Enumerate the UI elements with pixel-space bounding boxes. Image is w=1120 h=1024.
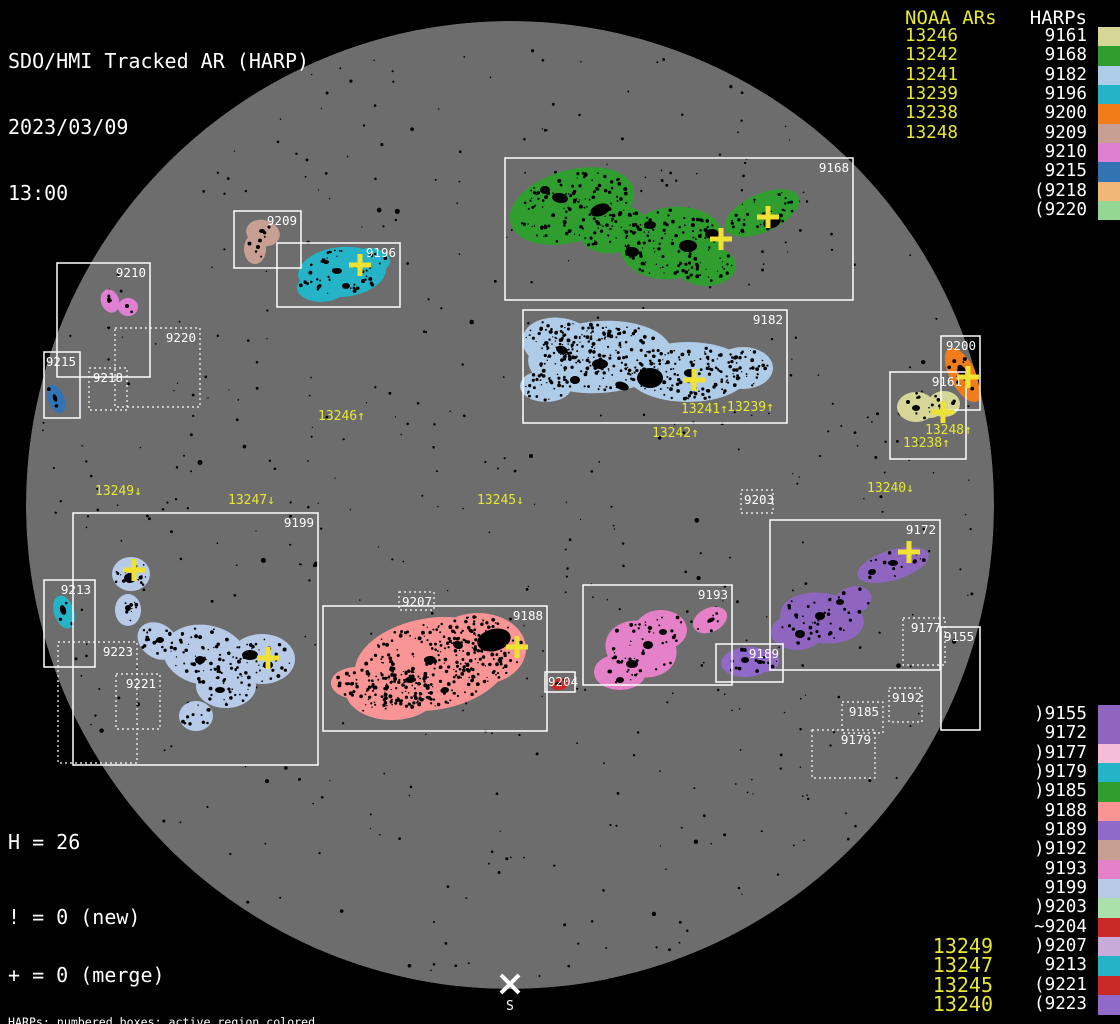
title-block: SDO/HMI Tracked AR (HARP) 2023/03/09 13:… xyxy=(8,6,309,248)
harp-color-swatch xyxy=(1098,143,1120,162)
harp-color-swatch xyxy=(1098,162,1120,181)
south-label: S xyxy=(506,999,514,1014)
harp-box-label-9223: 9223 xyxy=(103,644,133,659)
harp-list-row: 13240(9223 xyxy=(930,995,1120,1014)
harp-number: )9155 xyxy=(993,705,1087,724)
harp-number: 9209 xyxy=(968,124,1087,143)
harp-number: 9193 xyxy=(993,860,1087,879)
noaa-label-13240: 13240↓ xyxy=(867,481,914,496)
noaa-ar-number xyxy=(930,782,993,801)
noaa-ar-number: 13240 xyxy=(930,995,993,1014)
harp-list-row: 132419182 xyxy=(905,66,1120,85)
noaa-ar-number xyxy=(930,840,993,859)
harp-color-swatch xyxy=(1098,840,1120,859)
harp-number: 9210 xyxy=(968,143,1087,162)
harp-color-swatch xyxy=(1098,918,1120,937)
harp-list-row: 132429168 xyxy=(905,46,1120,65)
harp-list-row: (9220 xyxy=(905,201,1120,220)
harp-list-row: 9215 xyxy=(905,162,1120,181)
harp-color-swatch xyxy=(1098,937,1120,956)
harp-list-row: 132389200 xyxy=(905,104,1120,123)
harp-box-label-9188: 9188 xyxy=(513,608,543,623)
noaa-label-13239: 13239↑ xyxy=(727,400,774,415)
harp-count-label: H = 26 xyxy=(8,830,80,854)
noaa-label-13238: 13238↑ xyxy=(903,436,950,451)
harp-box-label-9182: 9182 xyxy=(753,312,783,327)
harp-number: 9168 xyxy=(968,46,1087,65)
harp-list-row: 132399196 xyxy=(905,85,1120,104)
harp-number: 9196 xyxy=(968,85,1087,104)
harp-number: (9223 xyxy=(993,995,1087,1014)
harp-color-swatch xyxy=(1098,744,1120,763)
harp-box-label-9213: 9213 xyxy=(61,582,91,597)
page-title: SDO/HMI Tracked AR (HARP) xyxy=(8,50,309,72)
harp-number: (9221 xyxy=(993,976,1087,995)
harp-number: (9220 xyxy=(968,201,1087,220)
footnote: HARPs: numbered boxes; active region col… xyxy=(8,991,413,1024)
harp-box-label-9185: 9185 xyxy=(849,704,879,719)
noaa-ar-number xyxy=(905,162,968,181)
harp-box-label-9221: 9221 xyxy=(126,676,156,691)
noaa-ar-number: 13242 xyxy=(905,46,968,65)
legend-line-merge: + = 0 (merge) xyxy=(8,966,237,985)
harp-number: 9215 xyxy=(968,162,1087,181)
harp-color-swatch xyxy=(1098,995,1120,1014)
harp-list-row: )9192 xyxy=(930,840,1120,859)
harp-number: )9192 xyxy=(993,840,1087,859)
harp-list-row: )9155 xyxy=(930,705,1120,724)
noaa-ar-number xyxy=(930,705,993,724)
harp-list-row: 9193 xyxy=(930,860,1120,879)
harp-color-swatch xyxy=(1098,66,1120,85)
noaa-label-13242: 13242↑ xyxy=(652,426,699,441)
noaa-ar-number xyxy=(930,744,993,763)
noaa-ar-number xyxy=(930,860,993,879)
harp-color-swatch xyxy=(1098,956,1120,975)
harp-box-label-9179: 9179 xyxy=(841,732,871,747)
noaa-ar-number xyxy=(930,724,993,743)
harp-box-label-9218: 9218 xyxy=(93,370,123,385)
harp-box-label-9192: 9192 xyxy=(892,690,922,705)
harp-number: 9182 xyxy=(968,66,1087,85)
harp-box-label-9220: 9220 xyxy=(166,330,196,345)
harp-color-swatch xyxy=(1098,85,1120,104)
noaa-ar-number: 13248 xyxy=(905,124,968,143)
harp-color-swatch xyxy=(1098,976,1120,995)
harp-list-row: 9189 xyxy=(930,821,1120,840)
time-label: 13:00 xyxy=(8,182,309,204)
harp-box-label-9203: 9203 xyxy=(744,492,774,507)
harp-list-row: )9177 xyxy=(930,744,1120,763)
harp-number: 9188 xyxy=(993,802,1087,821)
noaa-label-13247: 13247↓ xyxy=(228,493,275,508)
noaa-label-13245: 13245↓ xyxy=(477,493,524,508)
noaa-label-13246: 13246↑ xyxy=(318,409,365,424)
harp-color-swatch xyxy=(1098,879,1120,898)
harp-color-swatch xyxy=(1098,860,1120,879)
noaa-ar-number: 13241 xyxy=(905,66,968,85)
harp-box-label-9168: 9168 xyxy=(819,160,849,175)
noaa-ar-number xyxy=(930,879,993,898)
noaa-ar-number xyxy=(930,763,993,782)
noaa-label-13249: 13249↓ xyxy=(95,484,142,499)
noaa-ar-number: 13239 xyxy=(905,85,968,104)
date-label: 2023/03/09 xyxy=(8,116,309,138)
noaa-ar-number xyxy=(930,821,993,840)
harp-list-row: )9203 xyxy=(930,898,1120,917)
harp-box-label-9204: 9204 xyxy=(548,674,578,689)
harp-list-row: )9185 xyxy=(930,782,1120,801)
noaa-ar-number xyxy=(905,182,968,201)
harp-color-swatch xyxy=(1098,46,1120,65)
harp-color-swatch xyxy=(1098,705,1120,724)
harp-box-label-9189: 9189 xyxy=(749,646,779,661)
harp-number: 9161 xyxy=(968,27,1087,46)
harp-number: )9203 xyxy=(993,898,1087,917)
noaa-ar-number: 13238 xyxy=(905,104,968,123)
harp-box-label-9200: 9200 xyxy=(946,338,976,353)
harp-color-swatch xyxy=(1098,763,1120,782)
harp-number: 9213 xyxy=(993,956,1087,975)
harp-number: 9189 xyxy=(993,821,1087,840)
footnote-harps: HARPs: numbered boxes; active region col… xyxy=(8,1016,413,1024)
harp-box-label-9210: 9210 xyxy=(116,265,146,280)
noaa-ar-number xyxy=(905,201,968,220)
noaa-ar-number xyxy=(930,898,993,917)
harp-color-swatch xyxy=(1098,27,1120,46)
harp-box-label-9193: 9193 xyxy=(698,587,728,602)
harp-number: 9200 xyxy=(968,104,1087,123)
legend-line-new: ! = 0 (new) xyxy=(8,908,237,927)
harp-color-swatch xyxy=(1098,724,1120,743)
harp-list-row: 132489209 xyxy=(905,124,1120,143)
noaa-ar-number xyxy=(905,143,968,162)
sdo-hmi-harp-plot: 9168918292099196921092209218921592009161… xyxy=(0,0,1120,1024)
harp-number: )9177 xyxy=(993,744,1087,763)
harp-color-swatch xyxy=(1098,124,1120,143)
harp-number: )9179 xyxy=(993,763,1087,782)
harp-number: 9172 xyxy=(993,724,1087,743)
harp-list-row: 132469161 xyxy=(905,27,1120,46)
harp-list-row: (9218 xyxy=(905,182,1120,201)
harp-box-label-9196: 9196 xyxy=(366,245,396,260)
noaa-label-13241: 13241↑ xyxy=(681,402,728,417)
harps-bottom-list: )91559172)9177)9179)918591889189)9192919… xyxy=(930,705,1120,1015)
harp-list-row: 9172 xyxy=(930,724,1120,743)
noaa-ar-number xyxy=(930,802,993,821)
harp-color-swatch xyxy=(1098,201,1120,220)
harp-number: 9199 xyxy=(993,879,1087,898)
harp-list-row: 9188 xyxy=(930,802,1120,821)
harp-color-swatch xyxy=(1098,782,1120,801)
harp-number: )9207 xyxy=(993,937,1087,956)
harp-list-row: 9199 xyxy=(930,879,1120,898)
harp-color-swatch xyxy=(1098,182,1120,201)
harps-top-list: 1324691611324291681324191821323991961323… xyxy=(905,27,1120,220)
harp-color-swatch xyxy=(1098,821,1120,840)
harp-box-label-9172: 9172 xyxy=(906,522,936,537)
harp-color-swatch xyxy=(1098,802,1120,821)
harp-box-label-9155: 9155 xyxy=(944,629,974,644)
harp-number: )9185 xyxy=(993,782,1087,801)
harp-number: (9218 xyxy=(968,182,1087,201)
harp-box-label-9215: 9215 xyxy=(46,354,76,369)
harp-color-swatch xyxy=(1098,104,1120,123)
harp-color-swatch xyxy=(1098,898,1120,917)
noaa-ar-number: 13246 xyxy=(905,27,968,46)
harp-number: ~9204 xyxy=(993,918,1087,937)
harp-box-label-9177: 9177 xyxy=(911,620,941,635)
harp-list-row: 9210 xyxy=(905,143,1120,162)
harp-box-label-9199: 9199 xyxy=(284,515,314,530)
harp-list-row: )9179 xyxy=(930,763,1120,782)
